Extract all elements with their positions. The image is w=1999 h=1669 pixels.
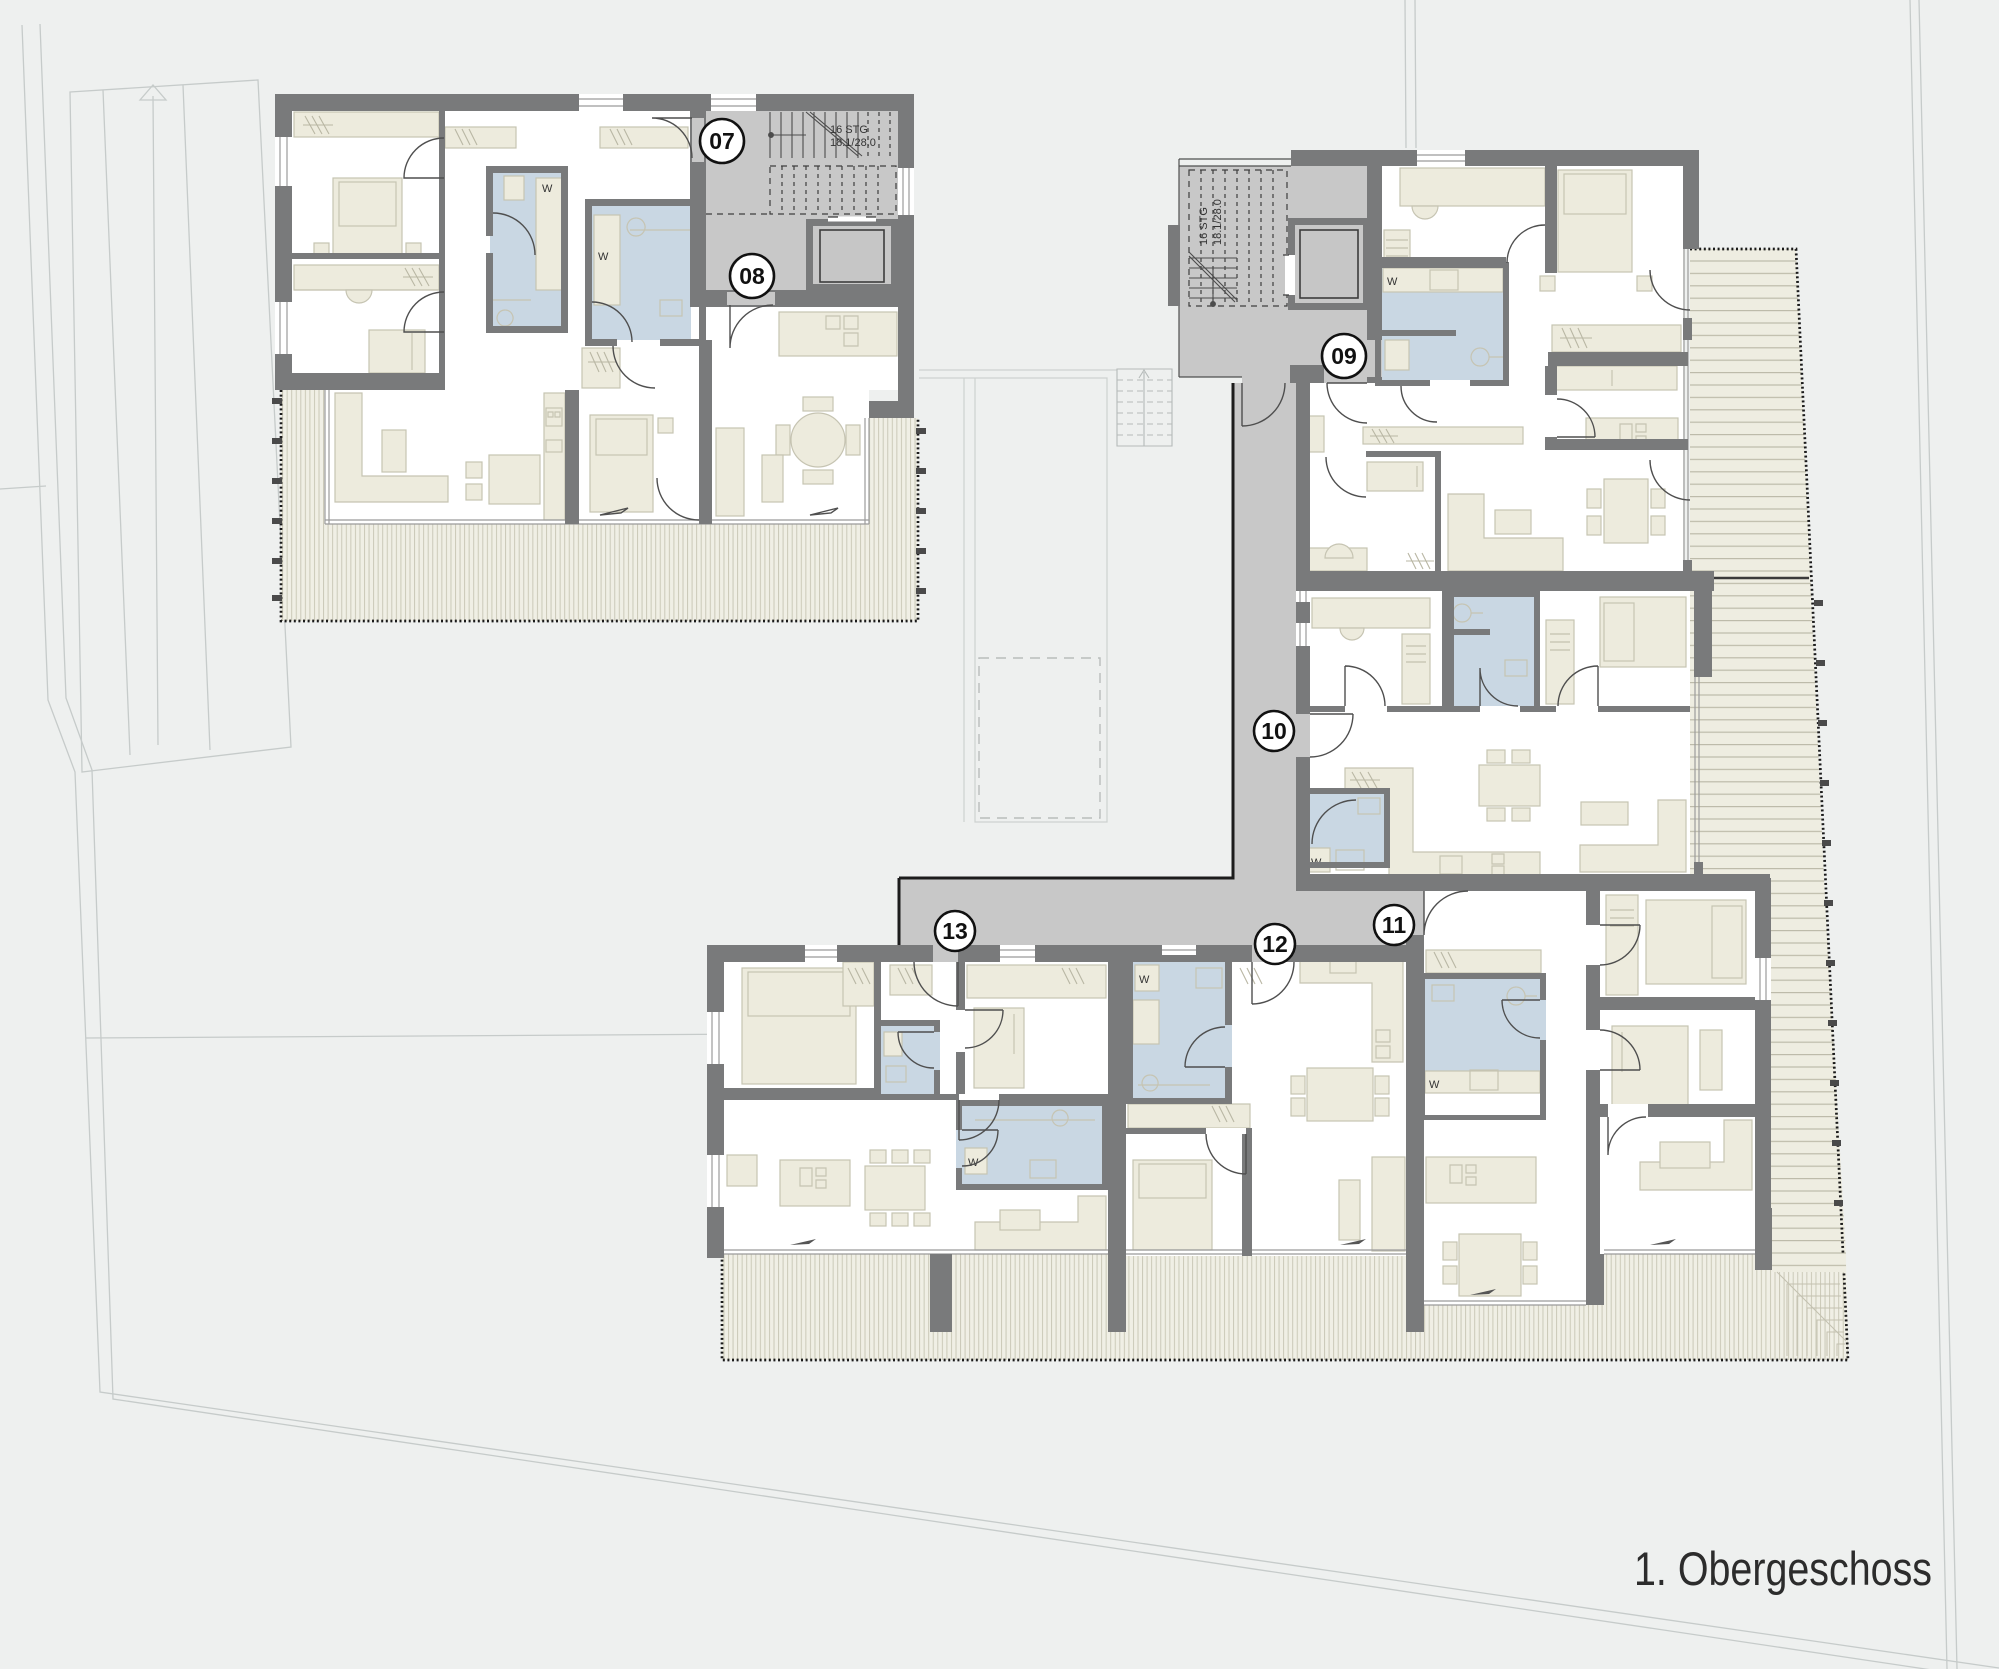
svg-text:16 STG: 16 STG: [830, 124, 868, 136]
svg-text:10: 10: [1261, 718, 1287, 744]
svg-text:W: W: [1387, 276, 1398, 288]
svg-text:16 STG: 16 STG: [1198, 207, 1210, 245]
svg-text:13: 13: [942, 918, 968, 944]
svg-text:08: 08: [739, 263, 765, 289]
svg-text:18.1/28.0: 18.1/28.0: [830, 137, 876, 149]
svg-text:W: W: [1139, 974, 1150, 986]
svg-text:18.1/28.0: 18.1/28.0: [1212, 199, 1224, 245]
svg-text:09: 09: [1331, 343, 1357, 369]
svg-text:W: W: [1429, 1079, 1440, 1091]
svg-text:W: W: [542, 183, 553, 195]
svg-text:07: 07: [709, 128, 735, 154]
svg-text:1. Obergeschoss: 1. Obergeschoss: [1634, 1542, 1932, 1595]
svg-text:W: W: [598, 251, 609, 263]
svg-text:12: 12: [1262, 931, 1288, 957]
svg-text:11: 11: [1382, 912, 1407, 938]
